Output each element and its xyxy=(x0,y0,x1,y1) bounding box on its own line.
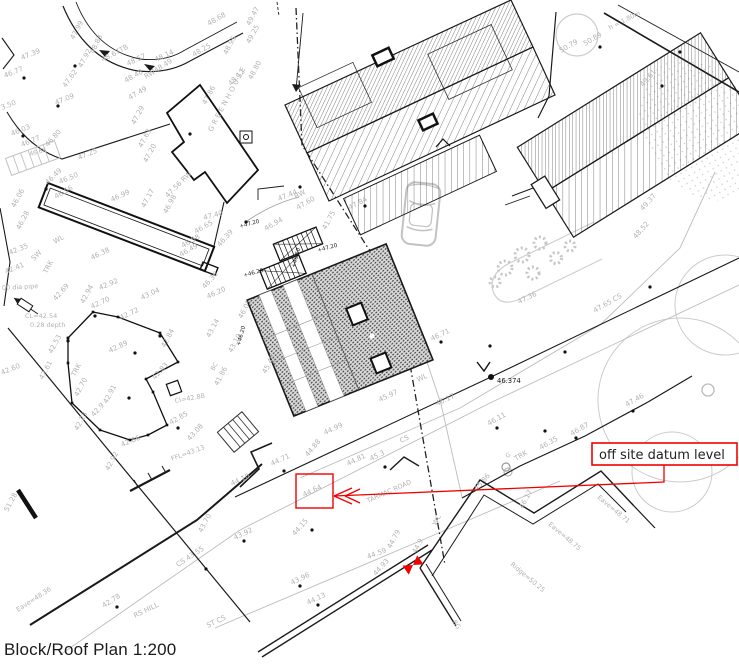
survey-point xyxy=(598,45,601,48)
spot-level-label: 47.40 xyxy=(202,209,223,222)
spot-level-label: 42.72 xyxy=(118,306,140,322)
spot-level-label: TRK xyxy=(41,259,55,276)
survey-node xyxy=(67,362,70,365)
spot-level-label: 42.92 xyxy=(98,277,120,292)
spot-level-label: 42.85 xyxy=(168,410,189,427)
spot-level-label: h = 1.80m xyxy=(607,9,641,32)
survey-point xyxy=(93,314,96,317)
spot-level-label: 42.35 xyxy=(8,242,30,257)
spot-level-label: 48.57 xyxy=(125,52,147,68)
spot-level-label: 46.38 xyxy=(89,246,111,262)
spot-level-label: CL=42.54 xyxy=(25,312,57,320)
survey-node xyxy=(71,402,74,405)
spot-level-label: 46.71 xyxy=(429,327,451,343)
survey-point xyxy=(66,339,69,342)
spot-level-label: 44.71 xyxy=(269,452,291,468)
spot-level-label: 42.70 xyxy=(73,376,89,397)
plan-caption: Block/Roof Plan 1:200 xyxy=(4,640,176,660)
leader-gray xyxy=(247,197,299,221)
survey-point xyxy=(648,285,651,288)
spot-level-label: 46.77 xyxy=(3,65,25,80)
spot-level-label: 46.28 xyxy=(15,209,31,230)
spot-level-label: +46.20 xyxy=(236,325,247,347)
survey-point xyxy=(282,469,285,472)
spot-level-label: 47.46 xyxy=(624,392,646,409)
spot-level-label: 42.69 xyxy=(52,282,71,302)
spot-level-label: TARMAC ROAD xyxy=(365,478,413,505)
site-plan-drawing: 47.3946.7747.6247.093.5047.9947.9248.834… xyxy=(0,0,739,669)
survey-point xyxy=(439,340,442,343)
spot-level-label: 44.88 xyxy=(303,438,322,458)
spot-level-label: 44.15 xyxy=(291,517,310,537)
survey-point xyxy=(298,584,301,587)
spot-level-label: Ridge=50.25 xyxy=(509,560,547,594)
wall-segment xyxy=(130,470,170,491)
spot-level-label: 46.11 xyxy=(486,411,507,428)
spot-level-label: 46.94 xyxy=(263,216,285,233)
survey-point xyxy=(383,465,386,468)
survey-node xyxy=(166,424,169,427)
survey-node xyxy=(147,434,150,437)
spot-level-label: 47.65 CS xyxy=(592,292,624,315)
survey-point xyxy=(176,426,179,429)
steps-southeast xyxy=(217,412,258,452)
annotation-text: off site datum level xyxy=(599,448,725,463)
spot-level-label: 46.98 xyxy=(162,193,178,214)
spot-level-label: 46.17 xyxy=(518,488,534,509)
spot-level-label: 42.86 xyxy=(120,434,142,449)
spot-level-label: 0.28 depth xyxy=(30,321,65,329)
spot-level-label: 47.29 xyxy=(130,104,146,125)
spot-level-label: 00 dia pipe xyxy=(2,282,39,292)
spot-level-label: 42.84 xyxy=(160,327,177,349)
spot-level-label: 47.36 xyxy=(516,290,538,306)
spot-level-label: TRK xyxy=(512,449,529,463)
survey-point xyxy=(158,334,161,337)
spot-level-label: 47.49 xyxy=(127,85,148,102)
spot-level-label: 42.23 xyxy=(73,410,89,431)
survey-node xyxy=(99,429,102,432)
spot-level-label: 47.56 RW xyxy=(164,170,194,200)
spot-level-label: 44.13 xyxy=(305,591,327,607)
spot-level-label: 42.89 xyxy=(107,339,129,355)
spot-level-label: 43.96 xyxy=(289,571,311,587)
spot-level-label: WL xyxy=(415,372,428,384)
spot-level-label: 46.80 xyxy=(44,128,63,148)
datum-transfer-mark xyxy=(402,555,423,574)
spot-level-label: RS HILL xyxy=(132,601,160,620)
survey-node xyxy=(177,361,180,364)
survey-point xyxy=(574,436,577,439)
spot-level-label: 50.89 xyxy=(582,31,603,48)
spot-level-label: BC xyxy=(210,361,220,372)
spot-level-label: 42.9 xyxy=(90,401,106,418)
spot-level-label: CS xyxy=(398,433,410,444)
spot-level-label: 44.81 xyxy=(345,452,367,468)
spot-level-label: 43.08 xyxy=(186,422,205,442)
spot-level-label: 48.52 xyxy=(632,220,651,240)
spot-level-label: 42.53 xyxy=(47,333,63,354)
spot-level-label: WL xyxy=(52,233,65,245)
survey-node xyxy=(159,332,162,335)
spot-level-label: 42.83 xyxy=(151,361,170,381)
road-channel-line-lower xyxy=(215,481,560,628)
survey-point xyxy=(563,350,566,353)
spot-level-label: 46.374 xyxy=(497,377,521,385)
block-roof-plan-sheet: 47.3946.7747.6247.093.5047.9947.9248.834… xyxy=(0,0,739,669)
survey-point xyxy=(488,344,491,347)
spot-level-label: 46.06 xyxy=(10,187,27,209)
survey-node xyxy=(152,391,155,394)
spot-level-label: 42.91 xyxy=(102,383,118,404)
datum-point xyxy=(477,362,494,380)
spot-level-label: +46.20 xyxy=(243,268,265,279)
spot-level-label: 48.80 xyxy=(247,59,263,80)
shrubs xyxy=(490,237,575,287)
spot-level-label: GREENHOUSE xyxy=(207,64,249,133)
spot-level-label: 42.60 xyxy=(0,362,21,377)
survey-point xyxy=(204,567,207,570)
spot-level-label: 42.61 xyxy=(38,359,54,380)
survey-point xyxy=(316,603,319,606)
spot-level-label: 48.68 xyxy=(206,11,227,28)
spot-level-label: WL xyxy=(431,514,443,527)
manhole xyxy=(166,380,181,395)
spot-level-label: 44.9 xyxy=(411,537,425,555)
survey-point xyxy=(495,426,498,429)
spot-level-label: 47.09 xyxy=(54,92,76,107)
spot-level-label: 43.04 xyxy=(139,286,161,302)
spot-level-label: 44.10 xyxy=(229,472,251,488)
road-edge-west xyxy=(30,464,262,625)
spot-level-label: 49.25 xyxy=(245,23,261,44)
survey-point xyxy=(188,132,191,135)
spot-level-label: Eave=48.75 xyxy=(547,520,583,552)
spot-level-label: SW xyxy=(30,249,44,263)
small-structure xyxy=(390,457,419,470)
spot-level-label: 3.50 xyxy=(0,99,17,112)
existing-building-northeast xyxy=(511,33,739,242)
survey-point xyxy=(242,539,245,542)
survey-point xyxy=(543,429,546,432)
benchmark-bar xyxy=(18,490,36,518)
spot-level-label: 42.41 xyxy=(4,261,26,276)
survey-point xyxy=(631,409,634,412)
spot-level-label: 50.79 xyxy=(558,38,579,55)
spot-level-label: 46.39 xyxy=(216,228,235,248)
spot-level-label: 47.39 xyxy=(20,47,42,62)
spot-level-label: 43.14 xyxy=(205,317,222,339)
spot-level-label: CI=42.88 xyxy=(174,392,205,405)
spot-level-label: 47.17 xyxy=(140,187,156,208)
pipe-symbol xyxy=(17,298,33,311)
spot-level-label: Eave=48.36 xyxy=(15,585,53,613)
survey-point xyxy=(133,351,136,354)
survey-node xyxy=(67,337,70,340)
corner-lines-nw xyxy=(2,38,14,69)
spot-level-label: 46.68 xyxy=(29,147,48,158)
spot-level-label: 51.28 xyxy=(3,491,19,512)
survey-point xyxy=(115,605,118,608)
spot-level-label: 48.95 xyxy=(222,34,238,55)
spot-level-label: G xyxy=(505,451,513,460)
survey-point xyxy=(44,187,47,190)
spot-level-label: 42.78 xyxy=(101,592,122,610)
spot-level-label: 46.03 xyxy=(10,123,32,138)
spot-level-label: 42.70 xyxy=(89,295,111,311)
spot-level-label: 41.75 xyxy=(321,209,337,230)
survey-point xyxy=(21,134,24,137)
survey-point xyxy=(127,396,130,399)
survey-point xyxy=(678,50,681,53)
spot-level-label: 48.25 xyxy=(191,42,212,59)
steps-northwest xyxy=(5,141,60,176)
survey-point xyxy=(22,76,25,79)
spot-level-label: +47.20 xyxy=(239,219,261,230)
spot-level-label: 44.64 xyxy=(301,483,323,499)
roof-vent xyxy=(369,333,374,338)
spot-level-label: 44.79 xyxy=(386,528,402,549)
spot-level-label: 43.70 xyxy=(197,512,213,533)
spot-level-label: 47.62 xyxy=(61,68,79,89)
spot-level-label: 44.99 xyxy=(322,421,344,437)
survey-point xyxy=(660,84,663,87)
survey-node xyxy=(145,378,148,381)
survey-point xyxy=(310,528,313,531)
spot-level-label: 45.97 xyxy=(377,388,399,404)
spot-level-label: 47.25 xyxy=(77,147,99,162)
spot-level-label: 46.99 xyxy=(109,188,131,204)
spot-level-label: FFL=43.13 xyxy=(170,443,206,463)
